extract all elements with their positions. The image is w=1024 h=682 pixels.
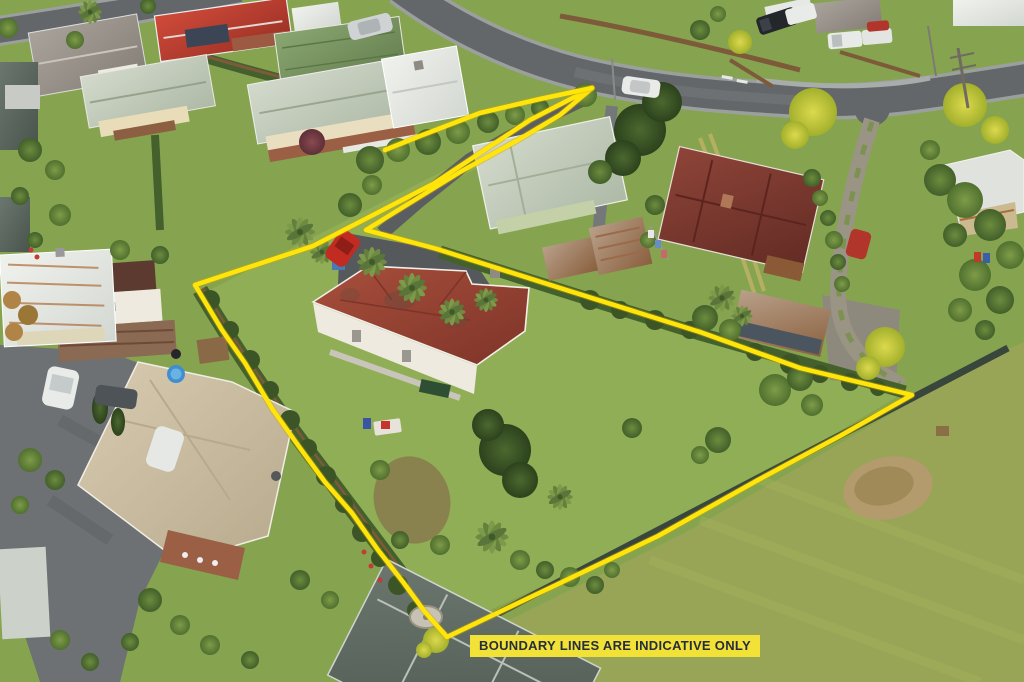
house-topright-white: [953, 0, 1024, 26]
satellite-dish: [271, 471, 281, 481]
picnic-bench: [196, 336, 229, 364]
bin-blue: [983, 253, 990, 263]
bbq: [171, 349, 181, 359]
maple-tree: [299, 129, 325, 155]
aerial-photo: BOUNDARY LINES ARE INDICATIVE ONLY: [0, 0, 1024, 682]
carport: [5, 85, 40, 109]
shed-white: [0, 547, 50, 639]
ute-white: [827, 31, 862, 50]
car-red-topright: [867, 20, 890, 32]
aerial-photo-canvas: [0, 0, 1024, 682]
house-left-dark2: [0, 197, 30, 252]
paddock-dirt-square: [936, 426, 949, 436]
house-white-roof: [381, 46, 468, 128]
disclaimer-banner: BOUNDARY LINES ARE INDICATIVE ONLY: [470, 635, 760, 657]
bin-red: [974, 252, 981, 262]
chimney: [413, 60, 423, 70]
